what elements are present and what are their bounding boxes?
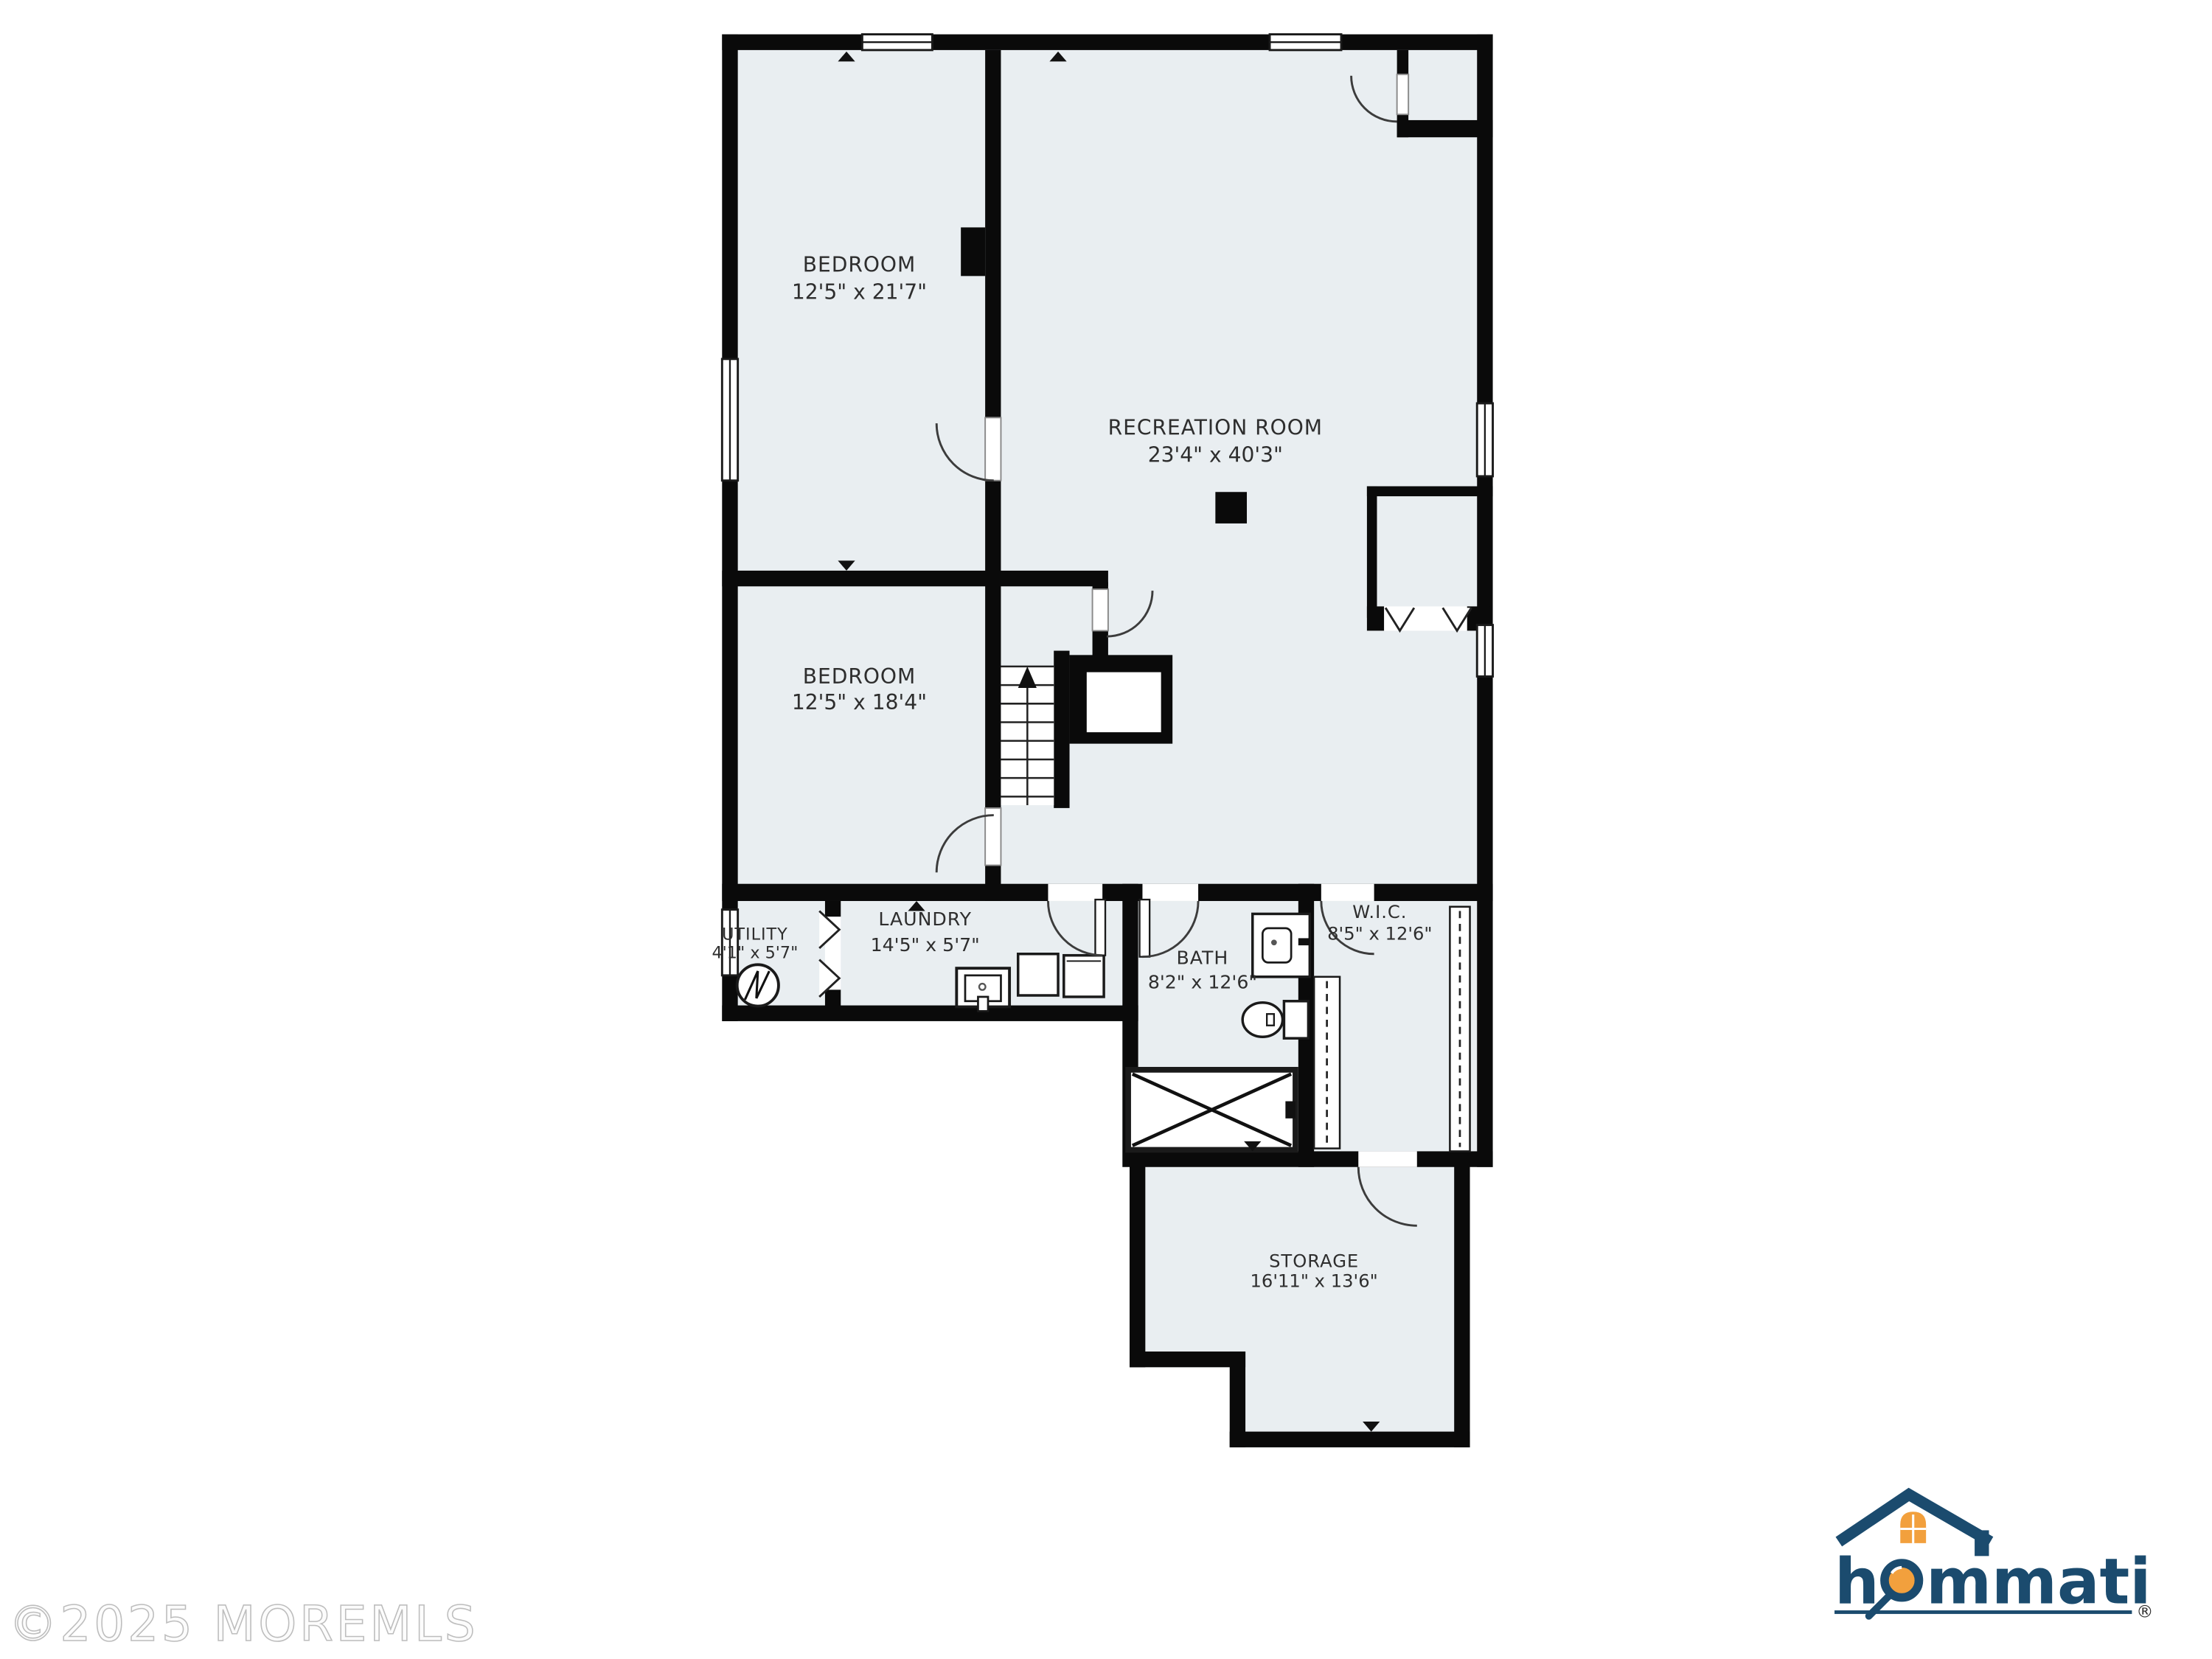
door-leaf-laundry [1095,900,1105,956]
door-leaf-bath [1140,900,1150,957]
wall-storage-left [1130,1151,1145,1367]
doorway-understair [1093,589,1108,630]
wall-left [722,35,737,1021]
label-bath-name: BATH [1176,947,1228,968]
doorway-storage [1358,1151,1417,1166]
wall-stair-right [1054,651,1069,808]
washer [1018,954,1058,995]
doorway-laundry [1048,884,1102,901]
window-rec-right-upper [1477,403,1492,476]
doorway-bath [1142,884,1198,901]
floor-storage [1130,1151,1470,1447]
floorplan-image: BEDROOM 12'5" x 21'7" RECREATION ROOM 23… [0,0,2212,1659]
bath-sink-vanity [1253,914,1310,976]
house-window-icon [1900,1512,1926,1543]
shower [1128,1070,1295,1150]
brand-registered-mark: ® [2136,1602,2153,1622]
wall-right [1477,35,1492,1167]
shower-valve-icon [1285,1102,1295,1119]
wall-bedrooms-divider [722,571,1108,586]
label-bath-dims: 8'2" x 12'6" [1148,971,1257,992]
wall-south-band [722,884,1492,901]
wall-tr-closet-bottom [1397,120,1493,137]
label-recreation-name: RECREATION ROOM [1108,416,1323,440]
wall-tr-closet-stub-a [1397,50,1409,74]
wall-storage-top [1130,1151,1493,1166]
label-utility-dims: 4'1" x 5'7" [712,944,798,963]
doorway-bedroom-1 [985,417,1001,480]
stair-landing [1087,672,1161,732]
label-recreation-dims: 23'4" x 40'3" [1148,443,1283,467]
support-column [1215,492,1247,524]
label-storage-name: STORAGE [1269,1251,1359,1272]
label-wic-dims: 8'5" x 12'6" [1327,922,1432,944]
label-bedroom-1-dims: 12'5" x 21'7" [792,279,927,304]
label-utility-name: UTILITY [722,925,788,944]
wall-storage-right [1454,1151,1470,1447]
wic-closet-rod-right [1450,907,1470,1152]
laundry-sink [956,968,1009,1011]
wall-mid-closet-jamb-left [1367,606,1384,630]
wall-laundry-bath [1122,884,1138,1021]
doorway-bedroom-2 [985,808,1001,866]
window-rec-right-lower [1477,625,1492,677]
wall-storage-notch-h [1130,1352,1245,1367]
wall-utility-stub-top [825,901,841,917]
window-bedroom1-left [722,359,737,481]
wall-laundry-bottom [722,1006,1136,1021]
brand-underline [1834,1610,2132,1614]
brand-text-rest: mmati [1926,1545,2151,1618]
wall-top [722,35,1492,50]
toilet [1242,1001,1308,1038]
label-bedroom-2-dims: 12'5" x 18'4" [792,690,927,714]
label-wic-name: W.I.C. [1352,901,1407,922]
label-bedroom-2-name: BEDROOM [803,664,916,689]
floorplan-page: BEDROOM 12'5" x 21'7" RECREATION ROOM 23… [0,0,2212,1659]
wall-mid-closet-top [1367,486,1493,496]
window-bedroom1-top [862,35,932,50]
chimney-block [961,227,985,276]
label-laundry-name: LAUNDRY [878,908,972,930]
doorway-tr-closet [1397,74,1409,114]
hommati-logo: h mmati ® [1834,1495,2153,1622]
water-heater-icon [737,964,779,1006]
label-laundry-dims: 14'5" x 5'7" [871,934,980,956]
wall-utility-stub-bottom [825,990,841,1006]
doorway-wic [1321,884,1374,901]
wall-storage-bottom [1230,1432,1470,1447]
label-bedroom-1-name: BEDROOM [803,253,916,277]
floor-upper-block [722,35,1492,901]
label-storage-dims: 16'11" x 13'6" [1251,1270,1378,1292]
wall-mid-closet-left [1367,486,1377,617]
mls-watermark: ©2025 MOREMLS [9,1596,479,1652]
wall-understair-stub-top [1093,582,1108,589]
wic-closet-rod-left [1314,977,1340,1149]
window-rec-top [1270,35,1341,50]
